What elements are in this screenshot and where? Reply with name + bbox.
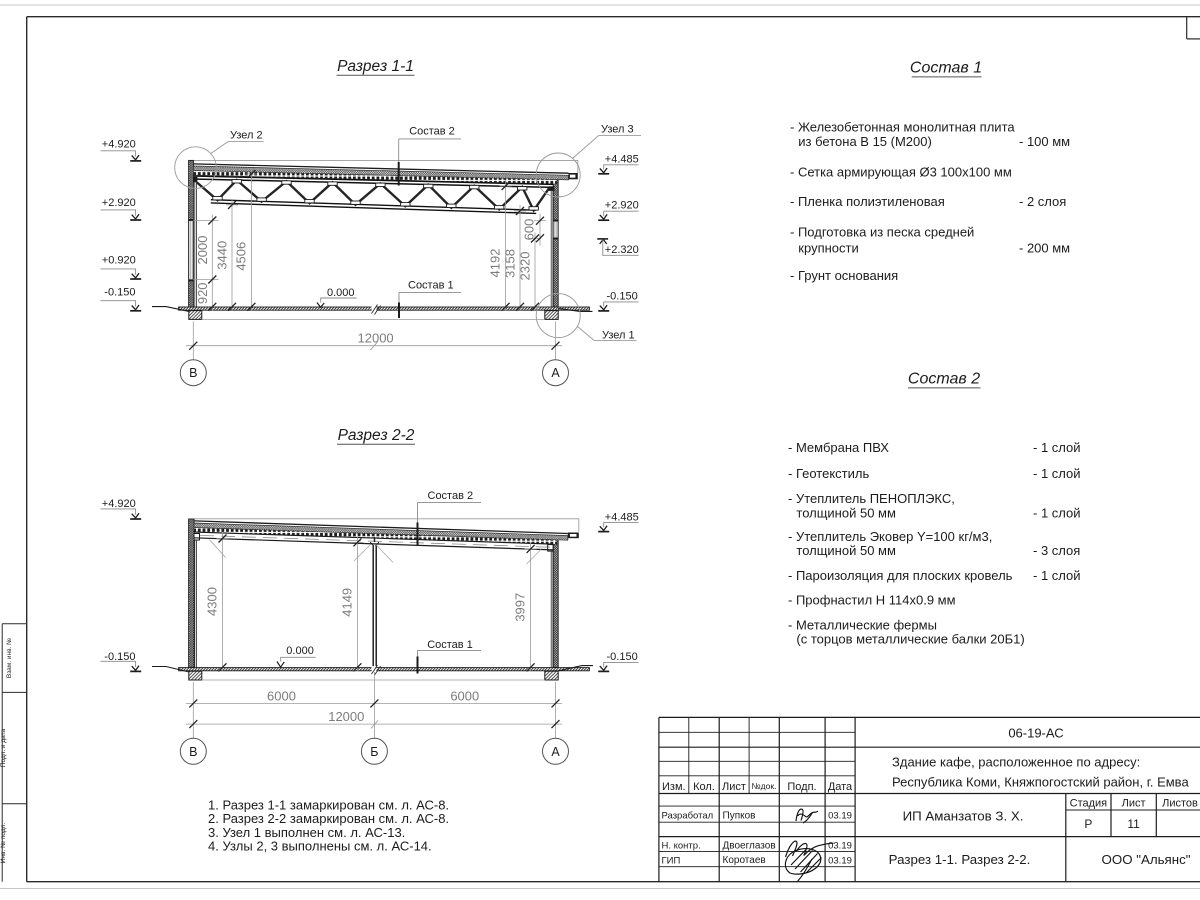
svg-text:Состав 1: Состав 1	[408, 279, 454, 291]
svg-text:- Подготовка из песка средней: - Подготовка из песка средней	[790, 225, 974, 240]
svg-text:Разрез 1-1. Разрез 2-2.: Разрез 1-1. Разрез 2-2.	[889, 852, 1031, 867]
svg-text:Состав 1: Состав 1	[427, 639, 473, 651]
svg-text:Взам. инв. №: Взам. инв. №	[6, 638, 13, 678]
svg-text:06-19-АС: 06-19-АС	[1008, 726, 1063, 741]
svg-text:03.19: 03.19	[828, 841, 852, 852]
svg-text:Листов: Листов	[1162, 797, 1198, 809]
svg-text:3440: 3440	[215, 241, 230, 270]
svg-text:Узел 3: Узел 3	[601, 124, 634, 136]
svg-text:0.000: 0.000	[286, 645, 314, 657]
svg-text:Разрез 1-1: Разрез 1-1	[337, 58, 414, 75]
svg-text:Дата: Дата	[828, 781, 853, 793]
svg-text:Подп.: Подп.	[787, 781, 816, 793]
svg-text:3158: 3158	[503, 249, 518, 278]
svg-text:- 1 слой: - 1 слой	[1033, 505, 1081, 520]
svg-text:+4.920: +4.920	[102, 498, 136, 510]
svg-text:Состав 2: Состав 2	[908, 371, 980, 388]
svg-text:4149: 4149	[340, 588, 355, 617]
svg-text:Подп. и дата: Подп. и дата	[0, 728, 7, 767]
svg-text:Состав 2: Состав 2	[428, 490, 474, 502]
svg-text:11: 11	[1127, 817, 1140, 831]
svg-text:+4.485: +4.485	[605, 512, 639, 524]
svg-text:600: 600	[522, 219, 537, 241]
svg-text:Разрез 2-2: Разрез 2-2	[338, 427, 415, 444]
svg-text:Республика Коми, Княжпогостски: Республика Коми, Княжпогостский район, г…	[892, 774, 1189, 789]
svg-text:ООО "Альянс": ООО "Альянс"	[1102, 852, 1191, 867]
svg-text:4. Узлы 2, 3 выполнены см. л.: 4. Узлы 2, 3 выполнены см. л. АС-14.	[208, 839, 432, 854]
svg-text:+4.920: +4.920	[102, 139, 136, 151]
svg-text:- 1 слой: - 1 слой	[1033, 466, 1081, 481]
svg-text:-0.150: -0.150	[607, 290, 638, 302]
svg-text:Узел 2: Узел 2	[230, 130, 263, 142]
svg-text:6000: 6000	[450, 688, 479, 703]
svg-text:Н. контр.: Н. контр.	[662, 840, 701, 851]
svg-text:- Грунт основания: - Грунт основания	[790, 268, 898, 283]
svg-text:+0.920: +0.920	[102, 255, 136, 267]
svg-text:- 200 мм: - 200 мм	[1019, 240, 1070, 255]
svg-text:А: А	[551, 366, 560, 380]
svg-text:- Железобетонная монолитная п: - Железобетонная монолитная плита	[790, 119, 1015, 134]
svg-text:- Геотекстиль: - Геотекстиль	[788, 466, 869, 481]
svg-text:В: В	[189, 366, 197, 380]
svg-text:-0.150: -0.150	[607, 651, 638, 663]
svg-text:- Профнастил Н 114х0.9 мм: - Профнастил Н 114х0.9 мм	[788, 593, 956, 608]
svg-text:крупности: крупности	[798, 240, 858, 255]
svg-text:В: В	[189, 745, 197, 759]
svg-text:- 100 мм: - 100 мм	[1019, 134, 1070, 149]
svg-text:Б: Б	[370, 745, 378, 759]
svg-text:Р: Р	[1084, 817, 1092, 831]
svg-text:2320: 2320	[518, 252, 533, 281]
svg-text:- 2 слоя: - 2 слоя	[1019, 194, 1066, 209]
svg-text:12000: 12000	[358, 331, 394, 346]
svg-text:- Утеплитель ПЕНОПЛЭКС,: - Утеплитель ПЕНОПЛЭКС,	[788, 491, 955, 506]
svg-text:+4.485: +4.485	[605, 153, 639, 165]
svg-text:Двоеглазов: Двоеглазов	[723, 840, 776, 851]
svg-text:Коротаев: Коротаев	[723, 855, 766, 866]
svg-text:- Сетка армирующая Ø3 100х100: - Сетка армирующая Ø3 100х100 мм	[790, 164, 1012, 179]
svg-text:из бетона В 15 (М200): из бетона В 15 (М200)	[798, 134, 932, 149]
svg-text:-0.150: -0.150	[104, 286, 135, 298]
svg-text:№док.: №док.	[752, 781, 777, 791]
svg-text:6000: 6000	[267, 688, 296, 703]
svg-text:Состав 1: Состав 1	[910, 60, 982, 77]
svg-text:- Мембрана ПВХ: - Мембрана ПВХ	[788, 440, 889, 455]
svg-text:03.19: 03.19	[828, 855, 852, 866]
svg-text:4300: 4300	[205, 587, 220, 616]
svg-text:920: 920	[195, 282, 210, 304]
svg-text:- 1 слой: - 1 слой	[1033, 440, 1081, 455]
svg-text:Изм.: Изм.	[662, 781, 686, 793]
svg-text:толщиной 50 мм: толщиной 50 мм	[796, 505, 896, 520]
svg-text:4506: 4506	[234, 242, 249, 271]
svg-text:- 1 слой: - 1 слой	[1033, 568, 1081, 583]
svg-text:4192: 4192	[488, 249, 503, 278]
svg-text:- 3 слоя: - 3 слоя	[1033, 543, 1080, 558]
svg-text:03.19: 03.19	[828, 811, 852, 822]
svg-text:- Металлические фермы: - Металлические фермы	[788, 618, 937, 633]
svg-text:- Пароизоляция для плоских кро: - Пароизоляция для плоских кровель	[788, 568, 1013, 583]
svg-text:ИП Аманзатов З. Х.: ИП Аманзатов З. Х.	[903, 809, 1024, 824]
svg-text:толщиной 50 мм: толщиной 50 мм	[796, 543, 896, 558]
svg-text:12000: 12000	[328, 709, 364, 724]
svg-text:А: А	[551, 745, 560, 759]
svg-text:Здание кафе, расположенное по: Здание кафе, расположенное по адресу:	[892, 755, 1140, 770]
svg-text:- Пленка полиэтиленовая: - Пленка полиэтиленовая	[790, 194, 945, 209]
svg-text:Узел 1: Узел 1	[602, 329, 635, 341]
svg-text:Лист: Лист	[722, 781, 746, 793]
svg-text:- Утеплитель Эковер Y=100 кг/м: - Утеплитель Эковер Y=100 кг/м3,	[788, 529, 992, 544]
svg-text:Кол.: Кол.	[693, 781, 715, 793]
svg-text:0.000: 0.000	[327, 287, 355, 299]
svg-text:+2.320: +2.320	[605, 244, 639, 256]
svg-text:Стадия: Стадия	[1070, 797, 1108, 809]
svg-text:(с торцов металлические балки: (с торцов металлические балки 20Б1)	[796, 631, 1024, 646]
svg-text:ГИП: ГИП	[662, 855, 681, 866]
svg-text:+2.920: +2.920	[102, 197, 136, 209]
svg-text:Разработал: Разработал	[662, 810, 714, 821]
svg-text:+2.920: +2.920	[605, 200, 639, 212]
svg-text:Пупков: Пупков	[723, 811, 756, 822]
svg-text:2000: 2000	[195, 236, 210, 265]
svg-text:3997: 3997	[513, 593, 528, 622]
svg-text:Состав 2: Состав 2	[409, 126, 455, 138]
svg-text:Инв. № подл.: Инв. № подл.	[0, 823, 7, 864]
svg-text:Лист: Лист	[1122, 797, 1146, 809]
